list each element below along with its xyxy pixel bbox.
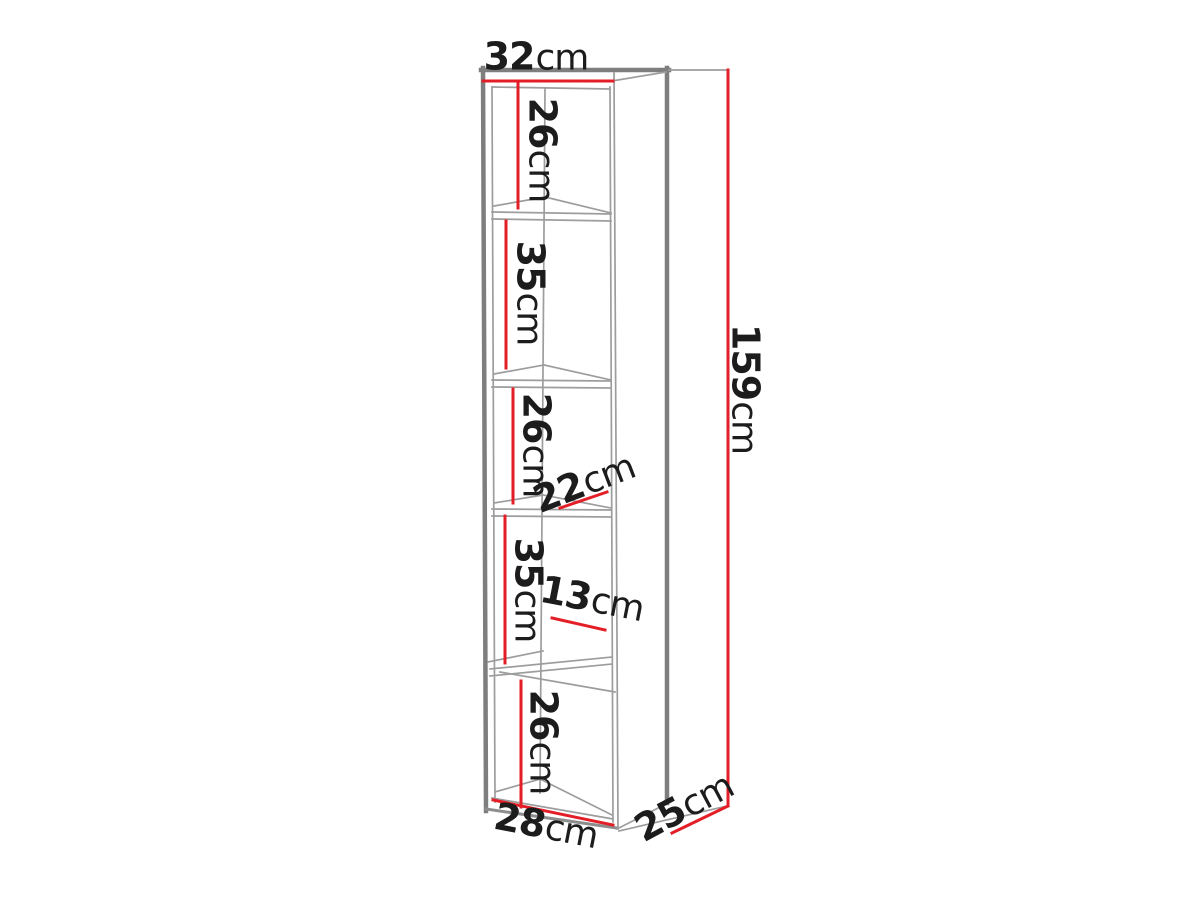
dim-label-total-height: 159cm bbox=[726, 324, 765, 454]
dim-label-compartment-1-height: 26cm bbox=[523, 98, 562, 203]
dim-value: 32 bbox=[484, 35, 535, 79]
dim-value: 13 bbox=[536, 567, 594, 620]
screenshot-root: 32cm 26cm 35cm 26cm 22cm 35cm 13cm 26cm … bbox=[0, 0, 1198, 899]
dim-unit: cm bbox=[522, 742, 563, 795]
dim-value: 159 bbox=[724, 324, 768, 400]
cabinet-outline bbox=[481, 68, 669, 829]
dim-unit: cm bbox=[536, 38, 589, 79]
dim-label-top-outer-width: 32cm bbox=[484, 38, 589, 77]
extension-lines bbox=[619, 70, 727, 831]
dim-value: 26 bbox=[515, 393, 559, 444]
dim-unit: cm bbox=[521, 150, 562, 203]
dim-unit: cm bbox=[724, 401, 765, 454]
dim-value: 26 bbox=[521, 98, 565, 149]
dim-label-compartment-2-height: 35cm bbox=[511, 241, 550, 346]
dim-label-compartment-5-height: 26cm bbox=[524, 690, 563, 795]
dim-value: 28 bbox=[490, 794, 548, 847]
dim-value: 35 bbox=[509, 241, 553, 292]
dim-unit: cm bbox=[509, 293, 550, 346]
cabinet-line-drawing bbox=[0, 0, 1198, 899]
dim-value: 26 bbox=[522, 690, 566, 741]
